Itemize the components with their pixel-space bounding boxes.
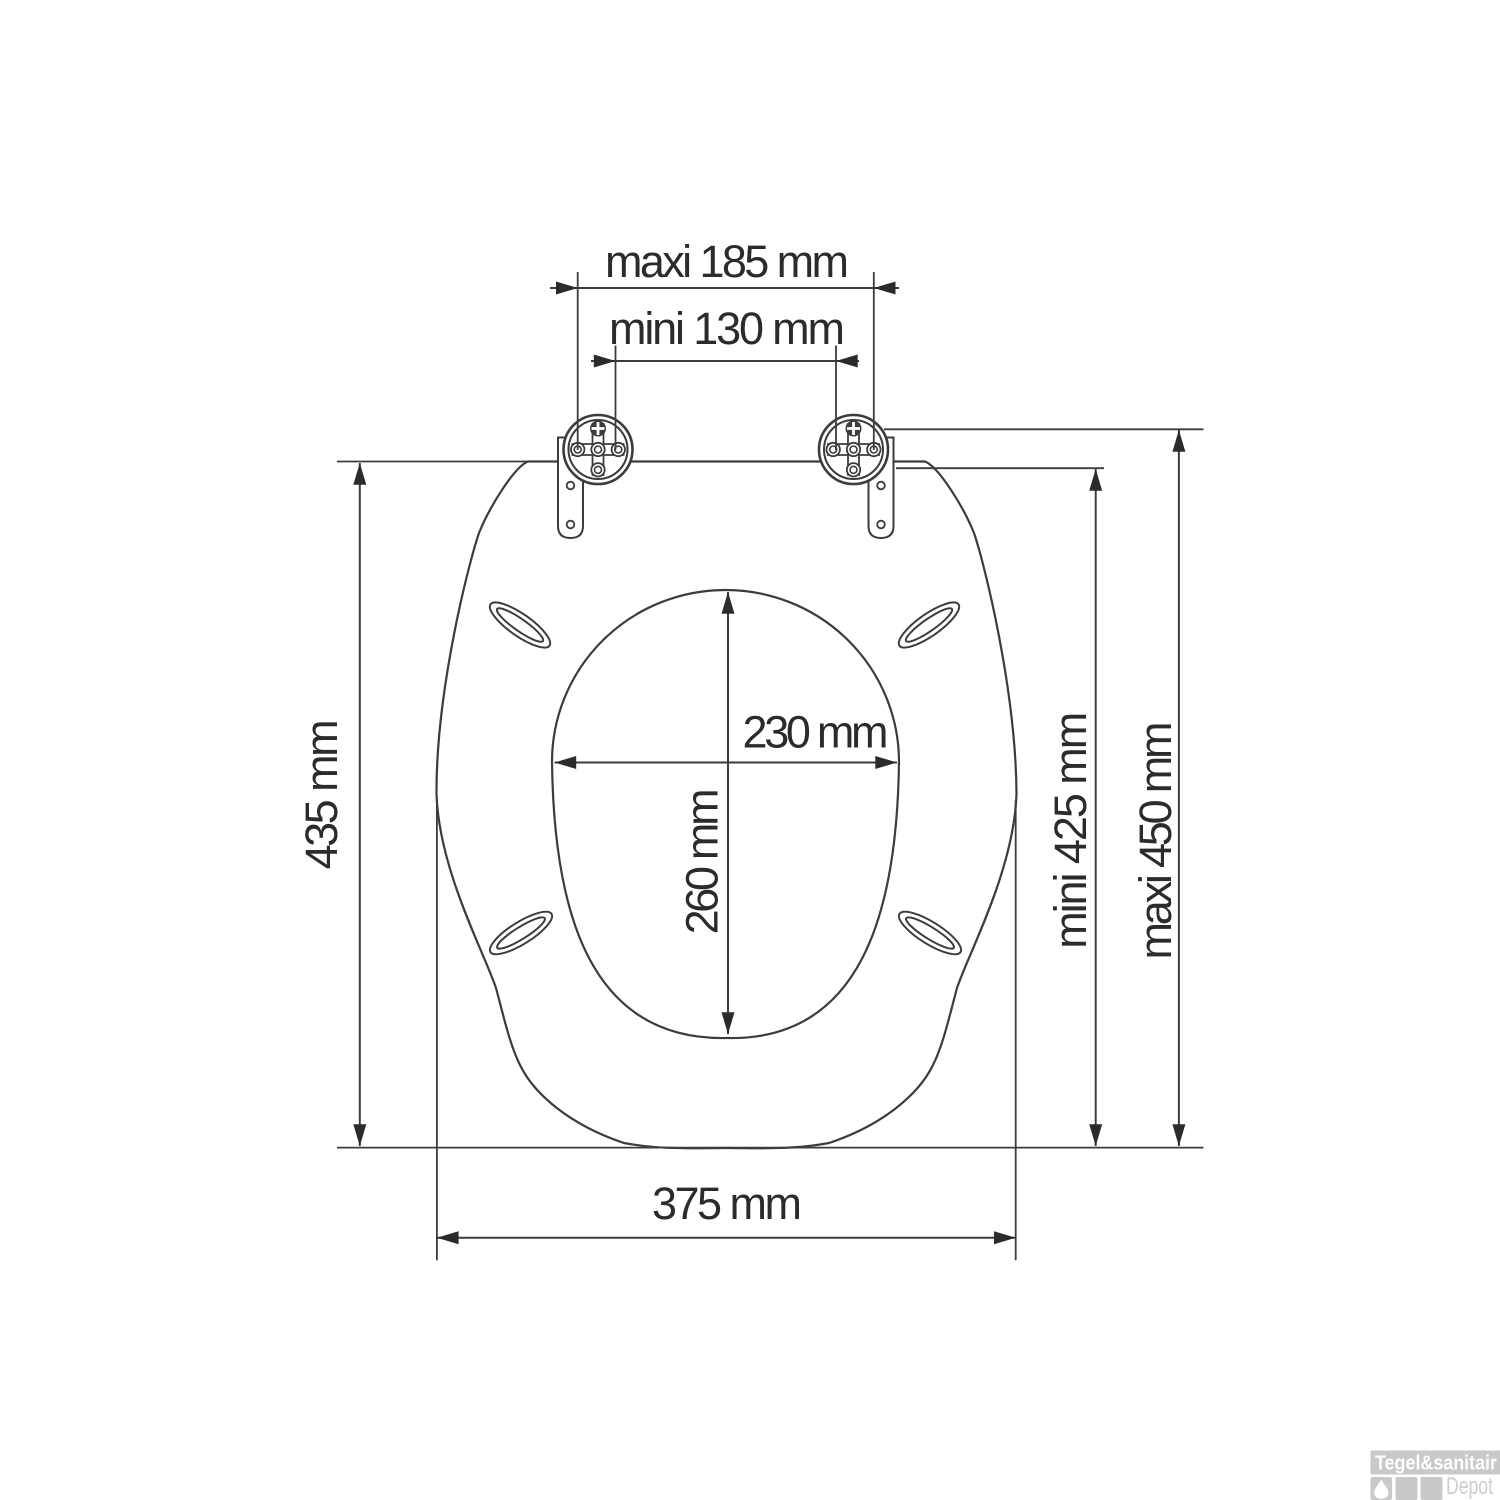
svg-text:Depot: Depot xyxy=(1446,1473,1493,1500)
svg-text:mini 130 mm: mini 130 mm xyxy=(609,303,845,354)
svg-text:375 mm: 375 mm xyxy=(652,1178,802,1229)
svg-text:435 mm: 435 mm xyxy=(296,719,347,869)
svg-text:230 mm: 230 mm xyxy=(743,707,889,758)
svg-text:maxi 185 mm: maxi 185 mm xyxy=(605,236,849,287)
svg-text:Tegel&sanitair: Tegel&sanitair xyxy=(1375,1453,1497,1475)
svg-text:maxi 450 mm: maxi 450 mm xyxy=(1130,722,1181,960)
svg-text:260 mm: 260 mm xyxy=(676,788,727,934)
svg-text:mini 425 mm: mini 425 mm xyxy=(1045,712,1096,949)
